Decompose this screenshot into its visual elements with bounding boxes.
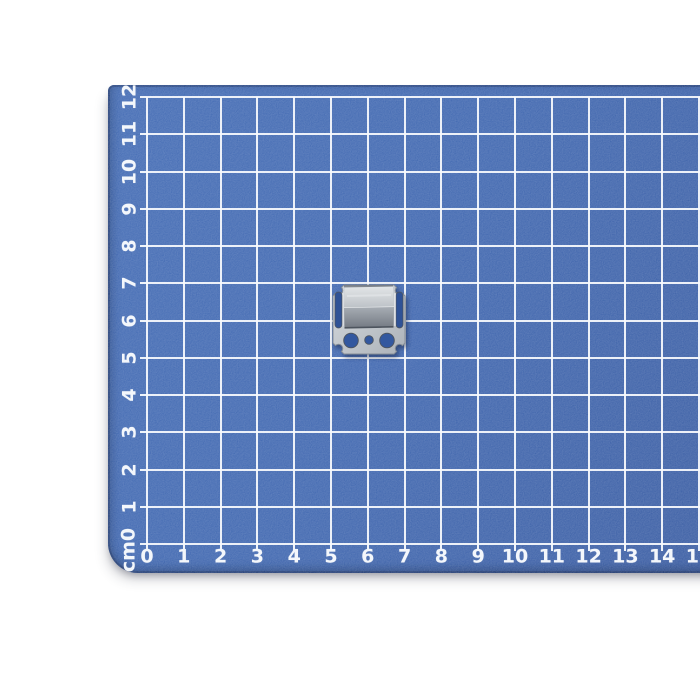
ruler-label-y: 4 [121, 388, 140, 401]
ruler-tick-left [140, 431, 147, 433]
grid-line-horizontal [147, 96, 700, 98]
clip-channel-top-streak [347, 295, 391, 296]
ruler-tick-left [140, 96, 147, 98]
metal-clip [331, 283, 407, 356]
ruler-tick-left [140, 543, 147, 545]
ruler-label-x: 15 [686, 548, 700, 567]
ruler-label-x: 11 [539, 548, 565, 567]
ruler-label-y: 9 [121, 202, 140, 215]
clip-slot-left-highlight [342, 293, 343, 326]
grid-line-horizontal [147, 543, 700, 545]
clip-slot-right-highlight [394, 293, 396, 326]
ruler-label-y: 5 [121, 351, 140, 364]
ruler-label-y: 3 [121, 426, 140, 439]
ruler-tick-left [140, 208, 147, 210]
ruler-label-y: 11 [121, 121, 140, 147]
grid-line-horizontal [147, 245, 700, 247]
ruler-label-x: 1 [177, 548, 190, 567]
ruler-label-x: 0 [140, 548, 153, 567]
clip-hole-right [380, 333, 395, 348]
grid-line-horizontal [147, 357, 700, 359]
ruler-corner-label: cm0 [120, 528, 139, 572]
grid-line-horizontal [147, 133, 700, 135]
grid-line-horizontal [147, 394, 700, 396]
ruler-label-y: 8 [121, 239, 140, 252]
clip-slot-right [396, 292, 403, 328]
ruler-tick-left [140, 320, 147, 322]
ruler-tick-left [140, 469, 147, 471]
ruler-label-y: 10 [121, 158, 140, 184]
grid-line-horizontal [147, 506, 700, 508]
ruler-label-y: 6 [121, 314, 140, 327]
clip-channel-top-face [344, 287, 394, 309]
ruler-label-x: 9 [472, 548, 485, 567]
clip-channel-front-face [344, 307, 394, 328]
ruler-tick-left [140, 282, 147, 284]
ruler-label-x: 5 [324, 548, 337, 567]
ruler-label-x: 2 [214, 548, 227, 567]
grid-line-horizontal [147, 469, 700, 471]
ruler-tick-left [140, 357, 147, 359]
ruler-label-y: 7 [121, 277, 140, 290]
ruler-label-y: 2 [121, 463, 140, 476]
ruler-label-x: 10 [502, 548, 528, 567]
ruler-label-x: 4 [288, 548, 301, 567]
clip-hole-left [344, 333, 359, 348]
clip-hole-center [365, 336, 374, 345]
grid-line-horizontal [147, 320, 700, 322]
clip-slot-left [335, 292, 342, 328]
ruler-tick-left [140, 171, 147, 173]
ruler-label-x: 8 [435, 548, 448, 567]
grid-line-horizontal [147, 431, 700, 433]
ruler-label-x: 13 [612, 548, 638, 567]
ruler-tick-left [140, 394, 147, 396]
ruler-label-x: 6 [361, 548, 374, 567]
ruler-tick-left [140, 133, 147, 135]
ruler-label-x: 7 [398, 548, 411, 567]
ruler-tick-left [140, 506, 147, 508]
grid-line-horizontal [147, 208, 700, 210]
ruler-label-x: 3 [251, 548, 264, 567]
ruler-label-y: 1 [121, 500, 140, 513]
ruler-label-x: 12 [575, 548, 601, 567]
grid-line-horizontal [147, 171, 700, 173]
photo-canvas: 0123456789101112131415123456789101112cm0 [0, 0, 700, 700]
grid-line-horizontal [147, 282, 700, 284]
ruler-tick-left [140, 245, 147, 247]
ruler-label-x: 14 [649, 548, 675, 567]
clip-channel-bottom-edge [345, 327, 394, 328]
ruler-label-y: 12 [121, 85, 140, 110]
